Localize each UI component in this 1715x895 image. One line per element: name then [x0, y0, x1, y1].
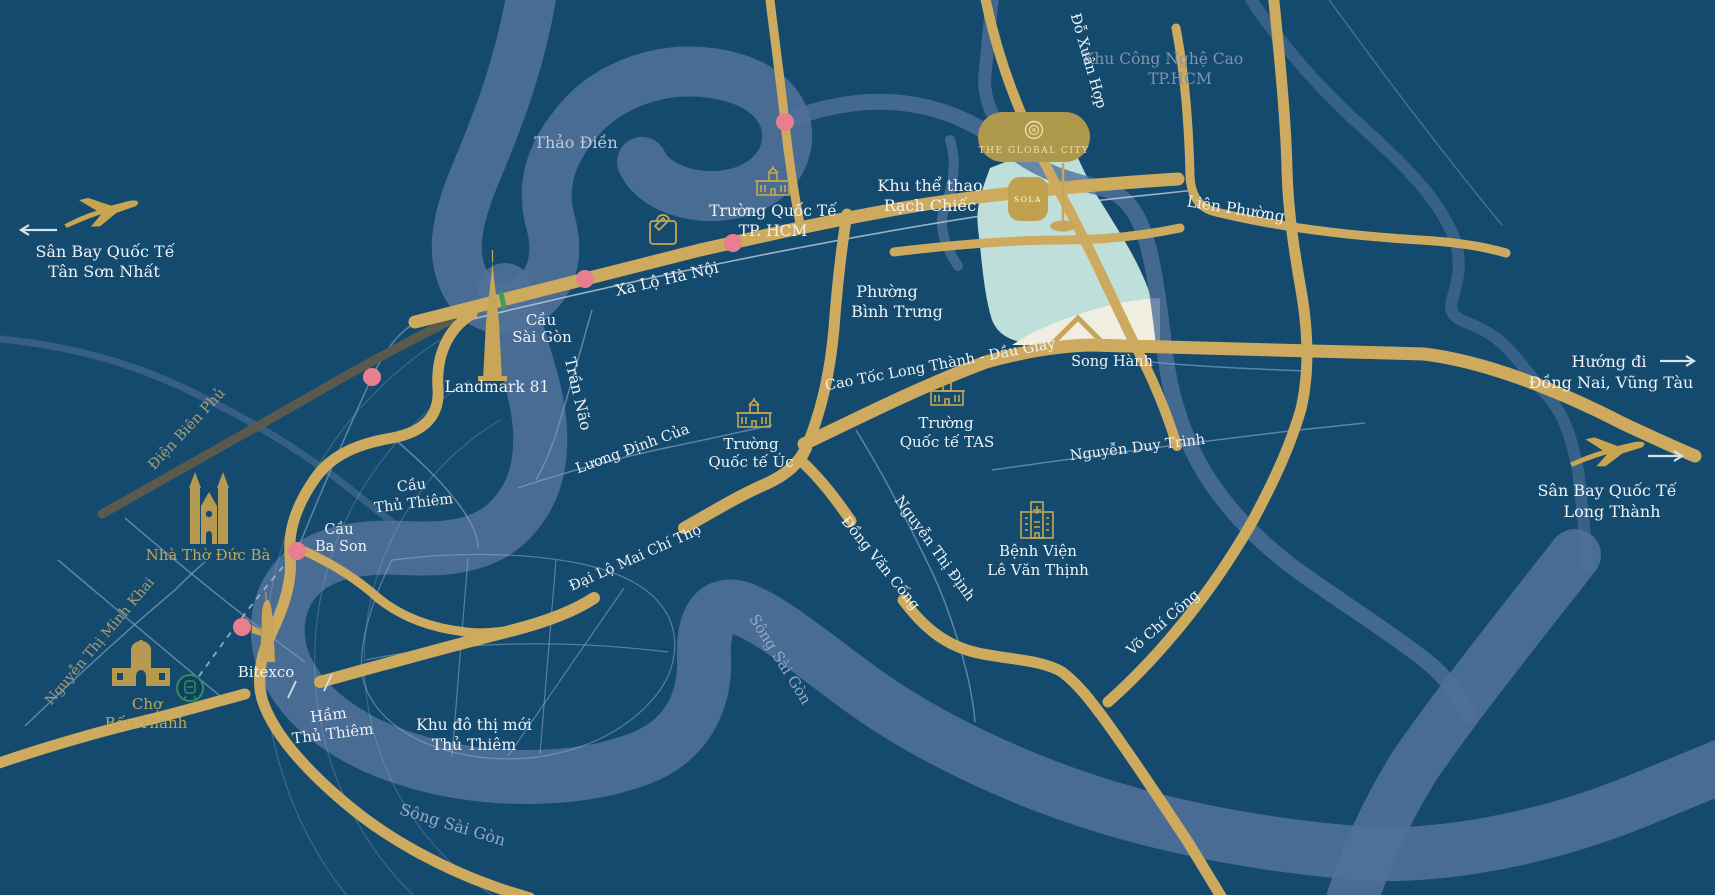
- label-airport-lt-2: Long Thành: [1563, 502, 1660, 521]
- map-background: [0, 0, 1715, 895]
- label-binh-trung-1: Phường: [856, 282, 918, 301]
- label-huong-di-2: Đồng Nai, Vũng Tàu: [1529, 373, 1694, 392]
- label-school-hcm-2: TP. HCM: [739, 222, 808, 240]
- label-rach-chiec-2: Rạch Chiếc: [884, 196, 976, 215]
- label-cau-sai-gon-1: Cầu: [526, 311, 557, 329]
- label-hi-tech-2: TP.HCM: [1148, 70, 1212, 88]
- label-hospital-1: Bệnh Viện: [999, 542, 1077, 560]
- poi-dot: [776, 113, 794, 131]
- label-thao-dien: Thảo Điền: [534, 133, 617, 152]
- poi-dot: [288, 542, 306, 560]
- label-landmark81: Landmark 81: [445, 378, 550, 396]
- label-school-hcm-1: Trường Quốc Tế: [709, 202, 837, 220]
- label-cau-ba-son-2: Ba Son: [315, 539, 367, 555]
- label-nha-tho-duc-ba: Nhà Thờ Đức Bà: [146, 546, 271, 564]
- label-cho-ben-thanh-2: Bến Thành: [105, 714, 188, 732]
- sola-badge: SOLA: [1008, 177, 1048, 221]
- label-airport-lt-1: Sân Bay Quốc Tế: [1537, 481, 1676, 500]
- label-airport-tsn-1: Sân Bay Quốc Tế: [35, 242, 174, 261]
- metro-station-icon: [177, 675, 203, 701]
- label-airport-tsn-2: Tân Sơn Nhất: [48, 262, 160, 281]
- label-bitexco: Bitexco: [238, 663, 295, 681]
- label-huong-di-1: Hướng đi: [1572, 352, 1647, 371]
- poi-dot: [233, 618, 251, 636]
- poi-dot: [576, 270, 594, 288]
- project-badge-label: THE GLOBAL CITY: [979, 146, 1090, 156]
- sola-label: SOLA: [1014, 195, 1042, 204]
- label-hospital-2: Lê Văn Thịnh: [987, 561, 1089, 579]
- label-uc-1: Trường: [723, 435, 779, 453]
- label-cho-ben-thanh-1: Chợ: [132, 695, 163, 713]
- label-rach-chiec-1: Khu thể thao: [877, 176, 982, 195]
- label-tas-2: Quốc tế TAS: [900, 433, 995, 451]
- label-thu-thiem-area-2: Thủ Thiêm: [432, 736, 517, 754]
- poi-dot: [363, 368, 381, 386]
- label-cau-ba-son-1: Cầu: [324, 521, 353, 538]
- map-canvas: THE GLOBAL CITY SOLA Sân Bay Quốc Tế Tân…: [0, 0, 1715, 895]
- label-binh-trung-2: Bình Trưng: [851, 302, 943, 321]
- label-song-hanh: Song Hành: [1071, 353, 1153, 370]
- label-hi-tech-1: Khu Công Nghệ Cao: [1083, 50, 1244, 68]
- label-cau-sai-gon-2: Sài Gòn: [512, 328, 572, 346]
- label-thu-thiem-area-1: Khu đô thị mới: [416, 716, 532, 734]
- project-badge: THE GLOBAL CITY: [978, 112, 1090, 162]
- map-screenshot: THE GLOBAL CITY SOLA Sân Bay Quốc Tế Tân…: [0, 0, 1715, 895]
- svg-text:Cầu: Cầu: [396, 475, 427, 495]
- label-tas-1: Trường: [918, 414, 974, 432]
- label-uc-2: Quốc tế Úc: [708, 453, 793, 471]
